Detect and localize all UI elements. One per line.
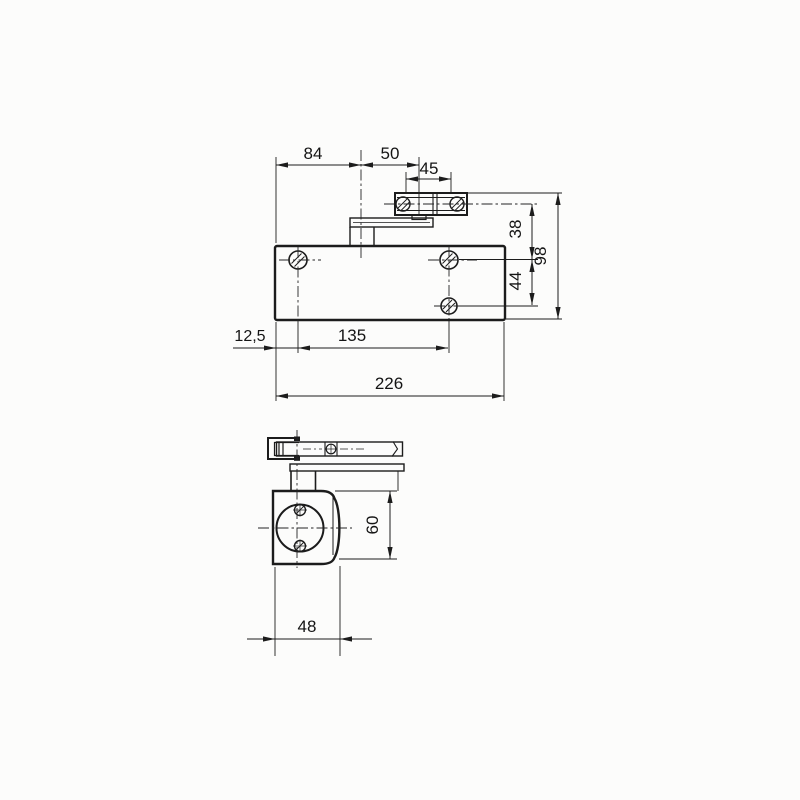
dim-label-60: 60 xyxy=(363,516,382,535)
dim-label-50: 50 xyxy=(381,144,400,163)
dim-60: 60 xyxy=(335,491,397,559)
dim-98: 98 xyxy=(468,193,562,319)
drawing-canvas: 84 50 45 38 44 xyxy=(0,0,800,800)
dim-226: 226 xyxy=(276,322,504,401)
spindle-housing xyxy=(291,471,316,491)
dim-label-38: 38 xyxy=(506,220,525,239)
break-line xyxy=(392,442,398,457)
arm-shoe-clamp xyxy=(268,437,300,461)
side-view xyxy=(258,430,404,568)
front-center-lines xyxy=(279,150,540,353)
dim-label-44: 44 xyxy=(506,272,525,291)
dim-label-84: 84 xyxy=(304,144,323,163)
dim-12-5-135: 12,5 135 xyxy=(233,322,448,401)
dim-label-226: 226 xyxy=(375,374,403,393)
closer-body-outline xyxy=(275,246,505,320)
dim-label-12-5: 12,5 xyxy=(234,328,265,345)
dim-38-44: 38 44 xyxy=(458,204,538,306)
lower-arm-channel xyxy=(290,464,404,491)
side-body xyxy=(273,491,339,564)
dim-label-135: 135 xyxy=(338,326,366,345)
dim-label-45: 45 xyxy=(420,159,439,178)
dim-48: 48 xyxy=(247,566,372,656)
upper-arm-bar xyxy=(277,442,403,457)
side-view-dimensions: 60 48 xyxy=(247,491,397,656)
dim-label-98: 98 xyxy=(531,247,550,266)
front-view xyxy=(275,150,540,353)
dim-label-48: 48 xyxy=(298,617,317,636)
pinion-pedestal xyxy=(350,215,433,246)
arm-pin xyxy=(325,444,337,455)
front-view-dimensions: 84 50 45 38 44 xyxy=(233,144,562,401)
page: 84 50 45 38 44 xyxy=(0,0,800,800)
side-body-outline xyxy=(273,491,339,564)
